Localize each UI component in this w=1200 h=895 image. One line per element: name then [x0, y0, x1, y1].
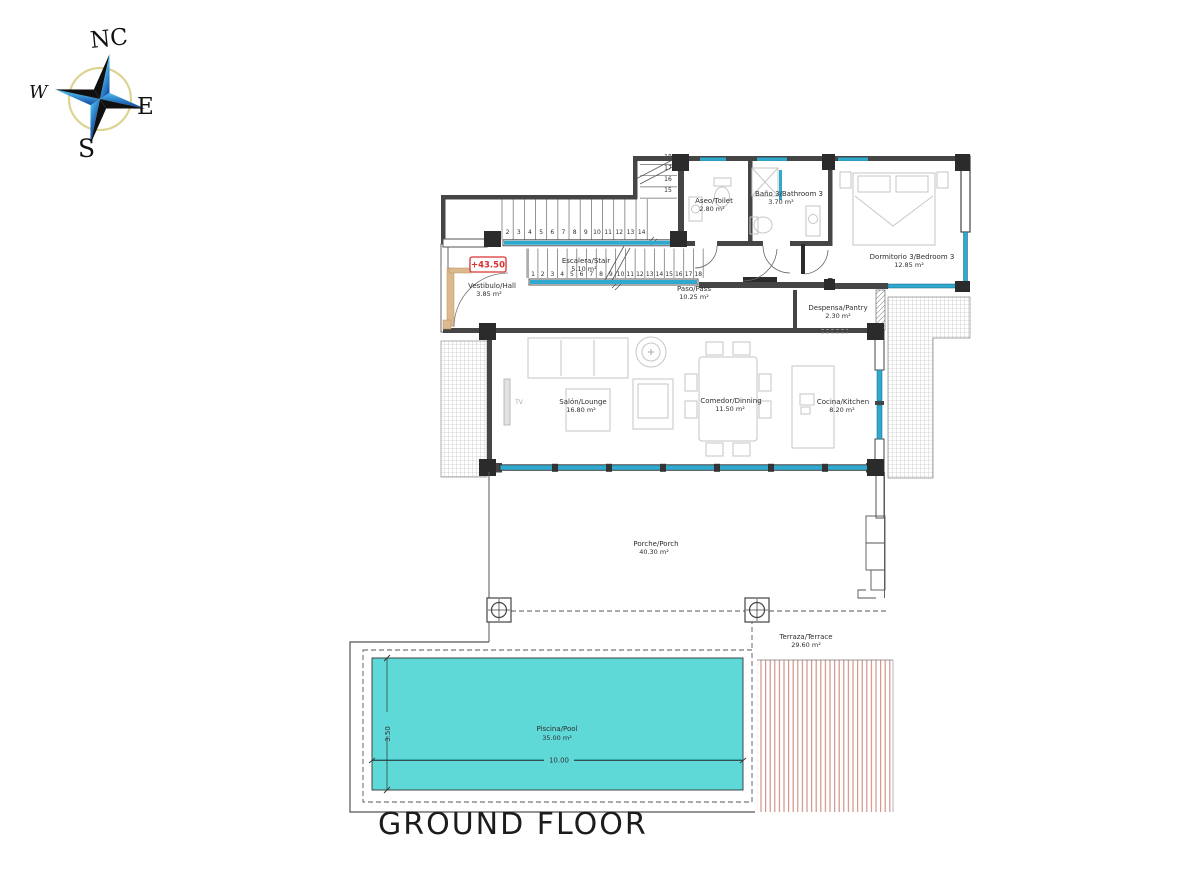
wall-double — [876, 472, 884, 518]
wall — [875, 401, 884, 405]
room-label-lounge: Salón/Lounge — [559, 398, 606, 406]
wall-double — [443, 239, 487, 247]
compass-west-label: W — [29, 82, 49, 103]
door-leaf — [801, 244, 805, 274]
kitchen-island — [792, 366, 834, 448]
window-glass — [757, 158, 787, 161]
kitchen-sink-small — [801, 407, 810, 414]
compass-rose: NC E S W — [29, 24, 155, 163]
porch-dashed-lines — [511, 611, 886, 650]
pool-water — [372, 658, 743, 790]
room-area-toilet: 2.80 m² — [699, 205, 725, 213]
window-glass — [877, 405, 882, 439]
room-area-terrace: 29.60 m² — [791, 641, 821, 649]
column — [822, 154, 835, 170]
dining-chair — [685, 374, 697, 391]
window-glass — [888, 284, 958, 288]
sofa — [528, 338, 628, 378]
pool-width-label: 10.00 — [549, 757, 569, 765]
bed-fold-line — [855, 196, 933, 226]
wall — [687, 241, 695, 246]
stair-tread-number: 5 — [539, 229, 543, 236]
window-glass — [700, 158, 726, 161]
entry-door-leaf — [447, 268, 454, 326]
dining-chair — [759, 374, 771, 391]
stair-tread-number: 12 — [636, 271, 644, 278]
terrace-steps — [858, 516, 885, 598]
deck-striped-area — [757, 660, 893, 812]
stair-tread-number: 2 — [506, 229, 510, 236]
room-label-bedroom3: Dormitorio 3/Bedroom 3 — [870, 253, 955, 261]
entry-wall-tan — [443, 320, 451, 329]
wall — [828, 160, 833, 246]
room-area-dining: 11.50 m² — [715, 405, 745, 413]
level-marker: +43.50 — [470, 257, 506, 272]
column — [867, 459, 884, 476]
window-glass — [964, 232, 968, 284]
room-area-kitchen: 8.20 m² — [829, 406, 855, 414]
porch-column-symbols — [487, 598, 769, 622]
stair-tread-number: 3 — [517, 229, 521, 236]
wall — [699, 282, 830, 288]
column — [479, 323, 496, 340]
bed — [853, 173, 935, 245]
stair-tread-number: 6 — [550, 229, 554, 236]
wall — [441, 195, 446, 244]
page-title: GROUND FLOOR — [378, 807, 648, 842]
floor-plan-page: NC E S W 234567891011121314 15161718 123… — [0, 0, 1200, 895]
bed-pillow — [858, 176, 890, 192]
column — [479, 459, 496, 476]
stair-tread-number: 3 — [551, 271, 555, 278]
room-label-bathroom3: Baño 3/Bathroom 3 — [755, 190, 823, 198]
compass-north-label: NC — [89, 24, 129, 54]
wall — [830, 283, 888, 289]
door-swing-arc — [695, 246, 717, 268]
right-terrace-hatch — [888, 297, 970, 478]
compass-east-label: E — [137, 94, 154, 120]
stair-tread-number: 4 — [560, 271, 564, 278]
room-label-dining: Comedor/Dinning — [700, 397, 761, 405]
room-label-terrace: Terraza/Terrace — [778, 633, 832, 641]
column — [672, 154, 689, 171]
wall — [443, 328, 884, 333]
stairs: 234567891011121314 15161718 123456789101… — [502, 153, 703, 290]
room-area-hall: 3.85 m² — [476, 290, 502, 298]
nightstand — [937, 172, 948, 188]
wall — [793, 290, 797, 332]
room-area-lounge: 16.80 m² — [566, 406, 596, 414]
room-area-stair: 5.10 m² — [571, 265, 597, 273]
porch — [487, 472, 886, 650]
column — [670, 231, 687, 247]
armchair — [633, 379, 673, 429]
room-label-toilet: Aseo/Toilet — [695, 197, 733, 205]
washbasin — [806, 206, 820, 236]
stair-tread-number: 10 — [617, 271, 625, 278]
stair-tread-number: 7 — [562, 229, 566, 236]
pool-depth-label: 3.50 — [384, 726, 392, 742]
tv-unit — [504, 379, 510, 425]
left-planter-hatch — [441, 341, 487, 477]
stair-tread-number: 18 — [694, 271, 702, 278]
door-leaf — [743, 277, 777, 282]
bed-pillow — [896, 176, 928, 192]
door-swing-arc — [763, 246, 790, 273]
toilet-tank — [714, 178, 731, 186]
stair-tread-number: 16 — [675, 271, 683, 278]
room-area-pool: 35.00 m² — [542, 734, 572, 742]
stair-tread-number: 8 — [573, 229, 577, 236]
window-glass — [504, 241, 670, 245]
dining-chair — [706, 342, 723, 355]
stair-tread-number: 16 — [664, 176, 672, 183]
room-area-bedroom3: 12.85 m² — [894, 261, 924, 269]
wall — [790, 241, 830, 246]
stair-tread-number: 13 — [627, 229, 635, 236]
stair-tread-number: 14 — [638, 229, 646, 236]
wall — [633, 156, 638, 199]
room-area-pass: 10.25 m² — [679, 293, 709, 301]
stair-tread-number: 11 — [626, 271, 634, 278]
dining-chair — [685, 401, 697, 418]
room-area-porch: 40.30 m² — [639, 548, 669, 556]
stair-tread-number: 17 — [664, 165, 672, 172]
kitchen-sink — [800, 394, 814, 405]
column — [955, 154, 970, 171]
stair-tread-number: 13 — [646, 271, 654, 278]
side-table-cross — [648, 349, 654, 355]
window-glass — [530, 280, 697, 284]
floor-plan-canvas: NC E S W 234567891011121314 15161718 123… — [0, 0, 1200, 895]
stair-tread-number: 4 — [528, 229, 532, 236]
stair-tread-number: 17 — [685, 271, 693, 278]
door-swing-arc — [805, 250, 828, 274]
toilet-bowl — [754, 217, 772, 233]
stair-tread-number: 9 — [609, 271, 613, 278]
column — [955, 281, 970, 292]
column — [824, 279, 835, 290]
pool-area: 10.00 3.50 — [350, 642, 893, 812]
dining-chair — [733, 443, 750, 456]
entry-door-lintel — [449, 268, 471, 273]
column — [867, 323, 884, 340]
room-label-pool: Piscina/Pool — [536, 725, 577, 733]
dining-chair — [706, 443, 723, 456]
level-marker-value: +43.50 — [471, 261, 505, 271]
tv-label: TV — [514, 399, 524, 406]
wall — [487, 328, 492, 472]
stair-tread-number: 1 — [531, 271, 535, 278]
room-label-pantry: Despensa/Pantry — [808, 304, 867, 312]
stair-tread-number: 12 — [615, 229, 623, 236]
room-label-hall: Vestibulo/Hall — [468, 282, 516, 290]
room-area-pantry: 2.30 m² — [825, 312, 851, 320]
armchair-seat — [638, 384, 668, 418]
column — [484, 231, 501, 247]
stair-tread-number: 15 — [664, 187, 672, 194]
room-label-porch: Porche/Porch — [633, 540, 678, 548]
compass-south-label: S — [78, 134, 95, 163]
dining-chair — [733, 342, 750, 355]
room-area-bathroom3: 3.70 m² — [768, 198, 794, 206]
nightstand — [840, 172, 851, 188]
room-label-stair: Escalera/Stair — [562, 257, 610, 265]
stair-tread-number: 15 — [665, 271, 673, 278]
stair-tread-number: 10 — [593, 229, 601, 236]
wall — [717, 241, 763, 246]
window-glass — [877, 370, 882, 401]
washbasin-bowl — [809, 215, 818, 224]
stair-tread-number: 8 — [599, 271, 603, 278]
stair-tread-number: 9 — [584, 229, 588, 236]
room-label-pass: Paso/Pass — [677, 285, 711, 293]
wall — [441, 195, 637, 200]
lower-run-numbers: 123456789101112131415161718 — [531, 271, 702, 278]
room-label-kitchen: Cocina/Kitchen — [817, 398, 869, 406]
stair-tread-number: 2 — [541, 271, 545, 278]
door-swing-arc — [743, 249, 777, 281]
window-glass — [838, 158, 868, 161]
stair-tread-number: 11 — [604, 229, 612, 236]
stair-tread-number: 14 — [656, 271, 664, 278]
